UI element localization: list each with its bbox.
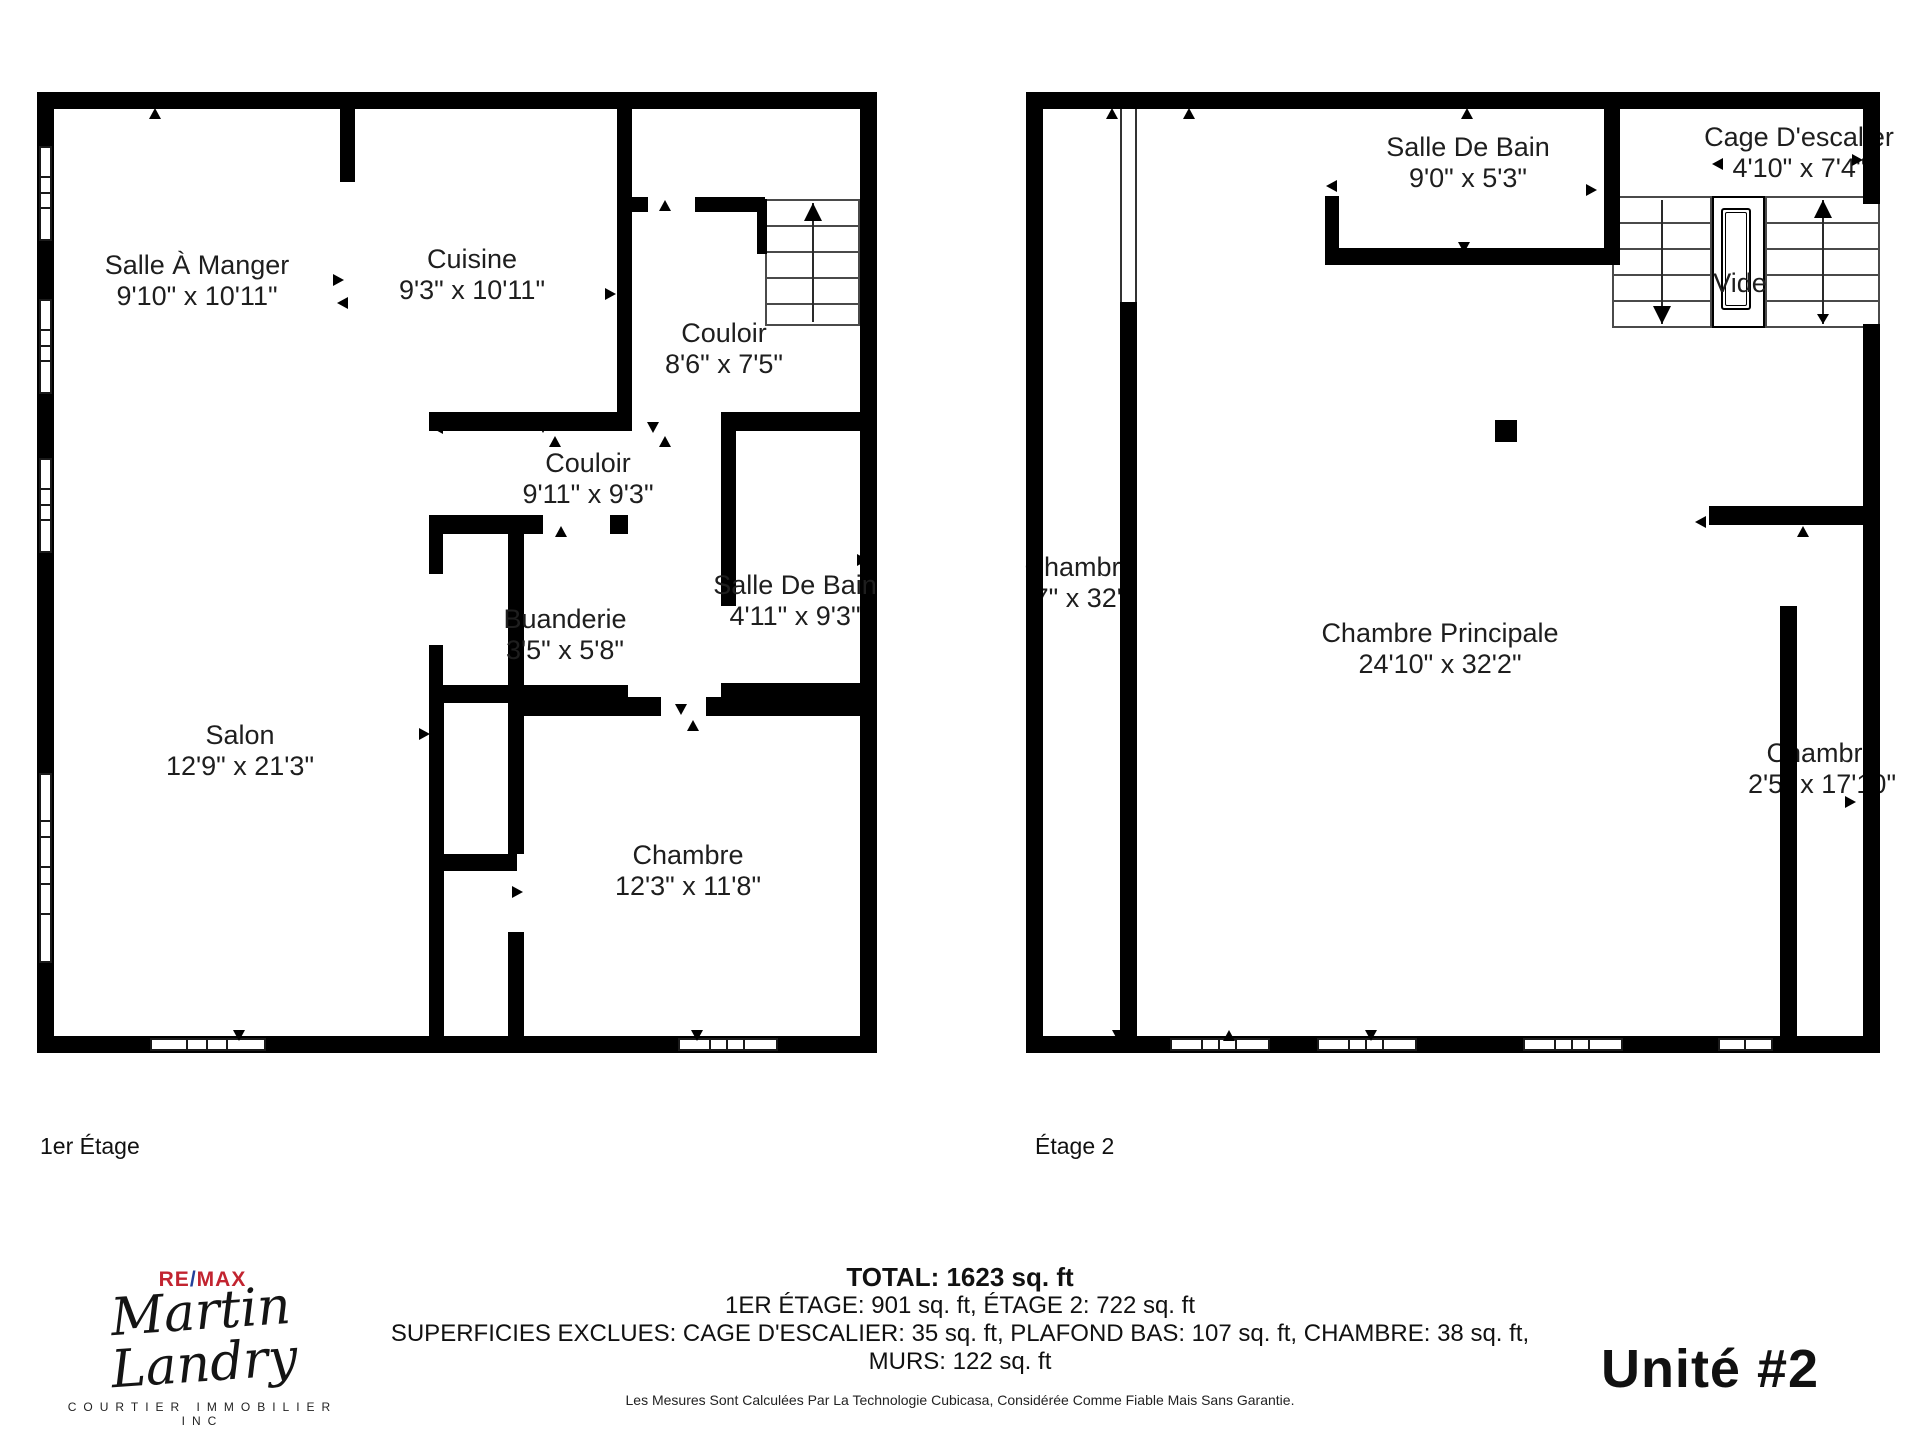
room-label-couloir-haut: Couloir8'6" x 7'5"	[624, 318, 824, 380]
door-swing-icon	[1365, 1030, 1377, 1041]
door-swing-icon	[647, 422, 659, 433]
wall	[508, 932, 524, 1036]
door-swing-icon	[605, 288, 616, 300]
wall	[695, 197, 765, 212]
window-icon	[39, 146, 52, 241]
floor2-caption: Étage 2	[1035, 1133, 1114, 1160]
stairs-up-icon	[1765, 196, 1880, 328]
room-label-chambre-droite: Chambre2'5" x 17'10"	[1722, 738, 1920, 800]
unit-label: Unité #2	[1545, 1338, 1875, 1400]
door-swing-icon	[723, 554, 734, 566]
door-swing-icon	[1586, 184, 1597, 196]
wall	[757, 199, 767, 254]
room-label-salon: Salon12'9" x 21'3"	[140, 720, 340, 782]
room-label-cage-escalier: Cage D'escalier4'10" x 7'4"	[1674, 122, 1920, 184]
column-marker	[1495, 420, 1517, 442]
door-swing-icon	[1797, 526, 1809, 537]
wall	[610, 515, 628, 534]
door-swing-icon	[794, 688, 806, 699]
door-swing-icon	[687, 720, 699, 731]
window-icon	[39, 299, 52, 394]
door-swing-icon	[659, 200, 671, 211]
wall	[429, 645, 443, 685]
wall	[37, 92, 877, 109]
door-swing-icon	[1223, 1030, 1235, 1041]
window-icon	[1523, 1038, 1623, 1051]
room-label-salle-de-bain-f1: Salle De Bain4'11" x 9'3"	[685, 570, 905, 632]
room-label-buanderie: Buanderie3'5" x 5'8"	[465, 604, 665, 666]
wall	[436, 854, 517, 871]
door-swing-icon	[233, 1030, 245, 1041]
door-swing-icon	[537, 422, 549, 433]
door-swing-icon	[149, 108, 161, 119]
window-icon	[1718, 1038, 1773, 1051]
door-swing-icon	[857, 554, 868, 566]
door-swing-icon	[691, 1030, 703, 1041]
door-swing-icon	[555, 692, 567, 703]
door-swing-icon	[549, 436, 561, 447]
door-swing-icon	[1112, 1030, 1124, 1041]
floor1-caption: 1er Étage	[40, 1133, 140, 1160]
broker-subtitle: COURTIER IMMOBILIER INC	[60, 1400, 345, 1428]
door-swing-icon	[1461, 108, 1473, 119]
wall	[706, 697, 877, 716]
door-swing-icon	[1852, 154, 1863, 166]
door-swing-icon	[1122, 462, 1133, 474]
wall	[1709, 506, 1880, 525]
floor-areas: 1ER ÉTAGE: 901 sq. ft, ÉTAGE 2: 722 sq. …	[360, 1292, 1560, 1320]
total-area: TOTAL: 1623 sq. ft	[360, 1262, 1560, 1292]
wall	[340, 109, 355, 182]
broker-name: Martin Landry	[57, 1276, 349, 1400]
door-swing-icon	[337, 297, 348, 309]
door-swing-icon	[1712, 158, 1723, 170]
area-summary: TOTAL: 1623 sq. ft 1ER ÉTAGE: 901 sq. ft…	[360, 1262, 1560, 1376]
door-swing-icon	[419, 728, 430, 740]
stairs-up-icon	[765, 199, 860, 326]
window-icon	[39, 773, 52, 963]
room-label-cuisine: Cuisine9'3" x 10'11"	[372, 244, 572, 306]
excluded-areas: SUPERFICIES EXCLUES: CAGE D'ESCALIER: 35…	[360, 1320, 1560, 1348]
wall	[508, 697, 524, 854]
wall	[721, 412, 877, 431]
door-swing-icon	[1458, 242, 1470, 253]
door-swing-icon	[1695, 516, 1706, 528]
room-label-chambre-f1: Chambre12'3" x 11'8"	[588, 840, 788, 902]
wall	[1863, 324, 1880, 1053]
wall	[632, 197, 648, 212]
wall	[1863, 92, 1880, 204]
window-icon	[1170, 1038, 1270, 1051]
wall	[1780, 606, 1797, 1053]
door-swing-icon	[659, 436, 671, 447]
door-swing-icon	[555, 526, 567, 537]
wall	[1026, 92, 1043, 1053]
door-swing-icon	[432, 422, 443, 434]
door-swing-icon	[1845, 796, 1856, 808]
floorplan-page: { "floor1": { "label": "1er Étage", "roo…	[0, 0, 1920, 1440]
door-swing-icon	[1864, 462, 1875, 474]
floor2-plan: Salle De Bain9'0" x 5'3" Cage D'escalier…	[1026, 92, 1880, 1053]
door-swing-icon	[1183, 108, 1195, 119]
door-swing-icon	[343, 108, 355, 119]
walls-area: MURS: 122 sq. ft	[360, 1348, 1560, 1376]
room-label-salle-a-manger: Salle À Manger9'10" x 10'11"	[77, 250, 317, 312]
door-swing-icon	[43, 262, 54, 274]
wall	[517, 697, 661, 716]
door-swing-icon	[1106, 108, 1118, 119]
wall	[1120, 302, 1137, 1053]
door-swing-icon	[43, 732, 54, 744]
door-swing-icon	[512, 886, 523, 898]
window-icon	[150, 1038, 266, 1051]
door-swing-icon	[1782, 796, 1793, 808]
room-label-salle-de-bain-f2: Salle De Bain9'0" x 5'3"	[1368, 132, 1568, 194]
wall	[429, 515, 543, 534]
room-label-couloir-milieu: Couloir9'11" x 9'3"	[488, 448, 688, 510]
stairwell-void	[1712, 196, 1765, 328]
door-swing-icon	[1326, 180, 1337, 192]
wall	[429, 412, 632, 431]
wall	[429, 534, 443, 574]
stairs-down-icon	[1612, 196, 1712, 328]
remax-martin-landry-logo: RE/MAX Martin Landry COURTIER IMMOBILIER…	[60, 1268, 345, 1428]
room-label-vide: Vide	[1710, 268, 1770, 299]
measurement-disclaimer: Les Mesures Sont Calculées Par La Techno…	[360, 1392, 1560, 1408]
wall-channel	[1120, 109, 1137, 302]
floor1-plan: Salle À Manger9'10" x 10'11" Cuisine9'3"…	[37, 92, 877, 1053]
door-swing-icon	[333, 274, 344, 286]
window-icon	[39, 458, 52, 553]
wall	[1026, 92, 1880, 109]
door-swing-icon	[675, 704, 687, 715]
room-label-chambre-principale: Chambre Principale24'10" x 32'2"	[1290, 618, 1590, 680]
wall	[1604, 92, 1620, 265]
